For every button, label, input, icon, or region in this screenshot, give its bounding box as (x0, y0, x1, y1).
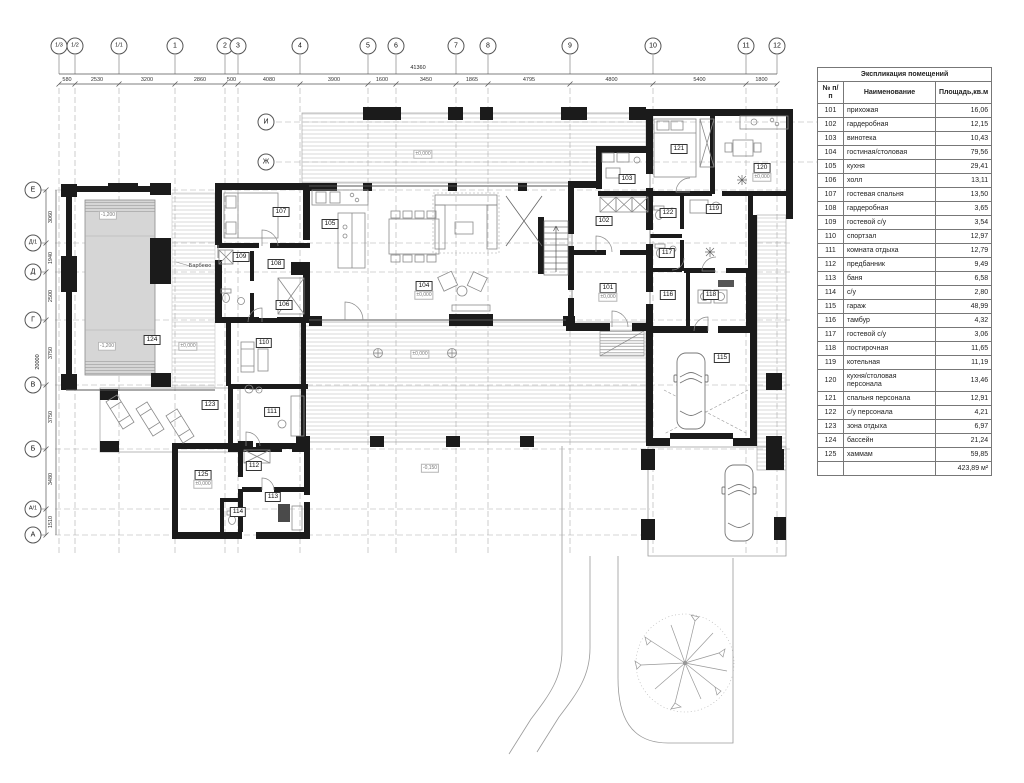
room-area: 48,99 (936, 300, 992, 314)
room-label-124: 124 (144, 335, 161, 345)
dimension-total-left: 20000 (35, 354, 41, 369)
room-area: 12,97 (936, 230, 992, 244)
room-number: 121 (818, 392, 844, 406)
annotation-terrace-elev: ±0,000 (413, 150, 432, 159)
axis-bubble-left: Д (25, 264, 42, 281)
room-area: 3,06 (936, 328, 992, 342)
axis-bubble-top: 8 (480, 38, 497, 55)
room-area: 6,97 (936, 420, 992, 434)
room-label-106: 106 (276, 300, 293, 310)
room-area: 4,32 (936, 314, 992, 328)
room-elevation-125: ±0,000 (193, 480, 212, 489)
room-label-110: 110 (256, 338, 272, 348)
room-number: 110 (818, 230, 844, 244)
room-label-117: 117 (659, 248, 675, 258)
room-area: 11,65 (936, 342, 992, 356)
table-row: 120кухня/столовая персонала13,46 (818, 370, 992, 392)
room-number: 106 (818, 174, 844, 188)
room-number: 116 (818, 314, 844, 328)
annotation-pool-depth-bottom: -1,200 (98, 342, 116, 351)
dimension-value-left: 3750 (48, 346, 54, 358)
room-area: 16,06 (936, 104, 992, 118)
room-label-120: 120 (754, 163, 771, 173)
room-number: 114 (818, 286, 844, 300)
room-area: 3,54 (936, 216, 992, 230)
table-row: 105кухня29,41 (818, 160, 992, 174)
dimension-value-top: 4080 (263, 77, 275, 83)
dimension-value-top: 1865 (466, 77, 478, 83)
room-label-113: 113 (265, 492, 281, 502)
dimension-value-top: 3200 (141, 77, 153, 83)
room-number: 109 (818, 216, 844, 230)
schedule-total: 423,89 м² (936, 462, 992, 476)
room-name: с/у (844, 286, 936, 300)
table-row: 122с/у персонала4,21 (818, 406, 992, 420)
room-area: 13,46 (936, 370, 992, 392)
room-name: зона отдыха (844, 420, 936, 434)
table-row: 119котельная11,19 (818, 356, 992, 370)
room-name: гостевой с/у (844, 216, 936, 230)
room-label-123: 123 (202, 400, 219, 410)
room-label-112: 112 (246, 461, 262, 471)
room-name: гардеробная (844, 118, 936, 132)
axis-bubble-left: В (25, 377, 42, 394)
table-row: 112предбанник9,49 (818, 258, 992, 272)
room-label-121: 121 (671, 144, 688, 154)
room-number: 125 (818, 448, 844, 462)
axis-bubble-left: Г (25, 312, 42, 329)
schedule-total-row: 423,89 м² (818, 462, 992, 476)
room-number: 105 (818, 160, 844, 174)
room-name: гостевая спальня (844, 188, 936, 202)
dimension-value-top: 1800 (755, 77, 767, 83)
room-label-115: 115 (714, 353, 730, 363)
room-number: 107 (818, 188, 844, 202)
room-label-105: 105 (322, 219, 339, 229)
room-area: 9,49 (936, 258, 992, 272)
table-row: 116тамбур4,32 (818, 314, 992, 328)
room-label-103: 103 (619, 174, 636, 184)
room-schedule-table: Экспликация помещений № п/п Наименование… (817, 67, 992, 476)
axis-bubble-top: 3 (230, 38, 247, 55)
axis-bubble-top: 4 (292, 38, 309, 55)
room-area: 12,91 (936, 392, 992, 406)
dimension-value-top: 5400 (693, 77, 705, 83)
floor-plan-canvas: 1/31/21/1123456789101112ЕД/1ДГВБА/1АИЖ58… (0, 0, 1024, 783)
room-area: 2,80 (936, 286, 992, 300)
room-number: 102 (818, 118, 844, 132)
room-name: кухня/столовая персонала (844, 370, 936, 392)
room-number: 113 (818, 272, 844, 286)
room-area: 13,50 (936, 188, 992, 202)
room-area: 29,41 (936, 160, 992, 174)
room-label-108: 108 (268, 259, 285, 269)
dimension-value-top: 500 (227, 77, 236, 83)
table-row: 114с/у2,80 (818, 286, 992, 300)
room-number: 111 (818, 244, 844, 258)
room-name: предбанник (844, 258, 936, 272)
room-number: 115 (818, 300, 844, 314)
room-area: 11,19 (936, 356, 992, 370)
dimension-value-top: 580 (62, 77, 71, 83)
room-number: 119 (818, 356, 844, 370)
room-number: 108 (818, 202, 844, 216)
room-elevation-101: ±0,000 (598, 293, 617, 302)
table-row: 121спальня персонала12,91 (818, 392, 992, 406)
axis-bubble-left: А/1 (25, 501, 42, 518)
axis-bubble-left: А (25, 527, 42, 544)
annotation-pool-depth-top: -1,200 (99, 211, 117, 220)
room-name: тамбур (844, 314, 936, 328)
room-label-101: 101 (600, 283, 617, 293)
room-area: 59,85 (936, 448, 992, 462)
table-row: 125хаммам59,85 (818, 448, 992, 462)
dimension-value-left: 2500 (48, 290, 54, 302)
axis-bubble-top: 1/1 (111, 38, 128, 55)
annotation-pool-deck-elev: ±0,000 (178, 342, 197, 351)
room-name: с/у персонала (844, 406, 936, 420)
axis-bubble-top: 11 (738, 38, 755, 55)
axis-bubble-inner: Ж (258, 154, 275, 171)
room-label-102: 102 (596, 216, 613, 226)
axis-bubble-top: 1/2 (67, 38, 84, 55)
table-row: 108гардеробная3,65 (818, 202, 992, 216)
room-number: 103 (818, 132, 844, 146)
dimension-value-top: 3450 (420, 77, 432, 83)
room-label-122: 122 (660, 208, 677, 218)
room-area: 79,56 (936, 146, 992, 160)
annotation-barbecue-label: Барбекю (189, 263, 211, 269)
axis-bubble-left: Е (25, 182, 42, 199)
schedule-title: Экспликация помещений (818, 68, 992, 82)
dimension-value-left: 3060 (48, 210, 54, 222)
room-name: холл (844, 174, 936, 188)
table-row: 124бассейн21,24 (818, 434, 992, 448)
room-area: 21,24 (936, 434, 992, 448)
axis-bubble-top: 1 (167, 38, 184, 55)
axis-bubble-left: Б (25, 441, 42, 458)
table-row: 104гостиная/столовая79,56 (818, 146, 992, 160)
room-name: кухня (844, 160, 936, 174)
room-label-125: 125 (195, 470, 212, 480)
room-area: 3,65 (936, 202, 992, 216)
room-elevation-104: ±0,000 (414, 291, 433, 300)
dimension-value-top: 1600 (376, 77, 388, 83)
room-number: 104 (818, 146, 844, 160)
axis-bubble-top: 5 (360, 38, 377, 55)
room-name: гараж (844, 300, 936, 314)
dimension-total-top: 41360 (410, 65, 425, 71)
room-label-109: 109 (233, 252, 250, 262)
room-name: гостевой с/у (844, 328, 936, 342)
room-label-116: 116 (660, 290, 676, 300)
dimension-value-top: 2530 (91, 77, 103, 83)
room-number: 101 (818, 104, 844, 118)
axis-bubble-top: 6 (388, 38, 405, 55)
room-label-111: 111 (264, 407, 280, 417)
annotation-deck-elev: ±0,000 (410, 350, 429, 359)
room-name: гардеробная (844, 202, 936, 216)
axis-bubble-top: 12 (769, 38, 786, 55)
dimension-value-left: 3750 (48, 411, 54, 423)
room-name: постирочная (844, 342, 936, 356)
room-number: 120 (818, 370, 844, 392)
axis-bubble-left: Д/1 (25, 235, 42, 252)
dimension-value-top: 3900 (328, 77, 340, 83)
room-number: 112 (818, 258, 844, 272)
room-name: баня (844, 272, 936, 286)
room-number: 123 (818, 420, 844, 434)
table-row: 123зона отдыха6,97 (818, 420, 992, 434)
room-name: комната отдыха (844, 244, 936, 258)
dimension-value-top: 4800 (605, 77, 617, 83)
room-name: котельная (844, 356, 936, 370)
table-row: 106холл13,11 (818, 174, 992, 188)
room-area: 13,11 (936, 174, 992, 188)
room-elevation-120: ±0,000 (752, 173, 771, 182)
dimension-value-top: 4795 (523, 77, 535, 83)
room-name: бассейн (844, 434, 936, 448)
table-row: 107гостевая спальня13,50 (818, 188, 992, 202)
room-area: 12,15 (936, 118, 992, 132)
axis-bubble-inner: И (258, 114, 275, 131)
room-name: прихожая (844, 104, 936, 118)
schedule-col-num: № п/п (818, 82, 844, 104)
table-row: 102гардеробная12,15 (818, 118, 992, 132)
room-name: гостиная/столовая (844, 146, 936, 160)
room-area: 4,21 (936, 406, 992, 420)
room-label-118: 118 (703, 290, 719, 300)
room-number: 118 (818, 342, 844, 356)
room-name: спортзал (844, 230, 936, 244)
schedule-col-area: Площадь,кв.м (936, 82, 992, 104)
dimension-value-left: 1510 (48, 516, 54, 528)
table-row: 103винотека10,43 (818, 132, 992, 146)
room-area: 6,58 (936, 272, 992, 286)
room-label-107: 107 (273, 207, 290, 217)
axis-bubble-top: 10 (645, 38, 662, 55)
table-row: 118постирочная11,65 (818, 342, 992, 356)
dimension-value-left: 1940 (48, 251, 54, 263)
schedule-col-name: Наименование (844, 82, 936, 104)
room-number: 122 (818, 406, 844, 420)
room-number: 117 (818, 328, 844, 342)
table-row: 101прихожая16,06 (818, 104, 992, 118)
table-row: 109гостевой с/у3,54 (818, 216, 992, 230)
room-name: хаммам (844, 448, 936, 462)
table-row: 117гостевой с/у3,06 (818, 328, 992, 342)
room-label-119: 119 (706, 204, 722, 214)
room-number: 124 (818, 434, 844, 448)
axis-bubble-top: 7 (448, 38, 465, 55)
room-name: винотека (844, 132, 936, 146)
table-row: 113баня6,58 (818, 272, 992, 286)
room-area: 10,43 (936, 132, 992, 146)
room-label-104: 104 (416, 281, 433, 291)
room-name: спальня персонала (844, 392, 936, 406)
room-label-114: 114 (230, 507, 246, 517)
table-row: 110спортзал12,97 (818, 230, 992, 244)
dimension-value-left: 3480 (48, 473, 54, 485)
annotation-lower-terrace-elev: -0,150 (421, 464, 439, 473)
axis-bubble-top: 1/3 (51, 38, 68, 55)
table-row: 115гараж48,99 (818, 300, 992, 314)
room-area: 12,79 (936, 244, 992, 258)
axis-bubble-top: 9 (562, 38, 579, 55)
dimension-value-top: 2860 (194, 77, 206, 83)
table-row: 111комната отдыха12,79 (818, 244, 992, 258)
